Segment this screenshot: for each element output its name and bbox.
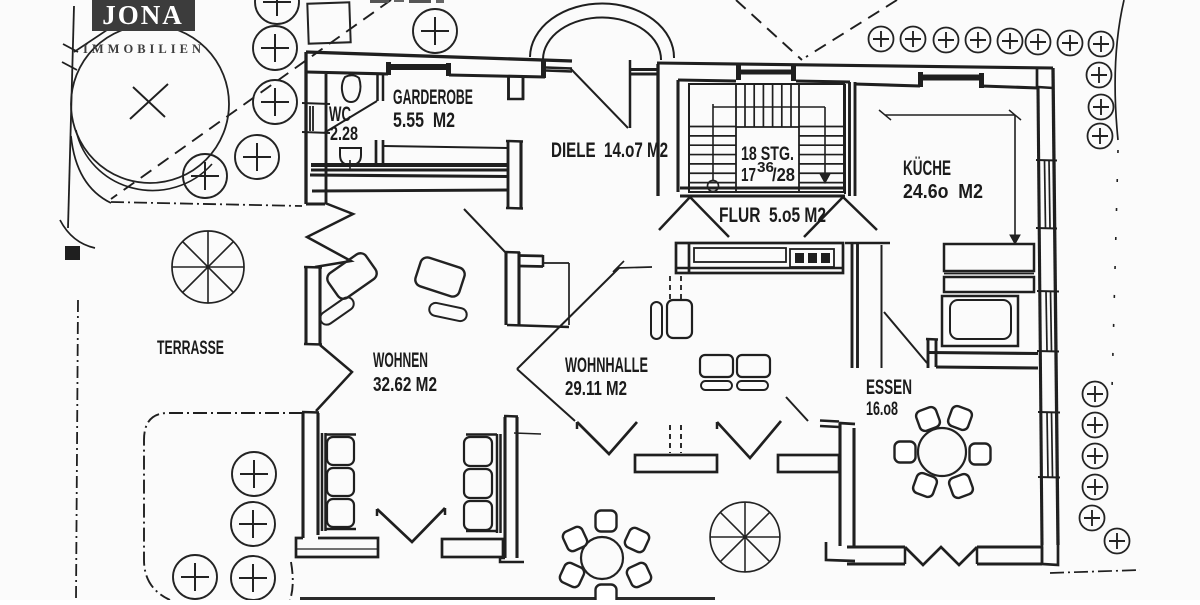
svg-text:DIELE 14.o7 M2: DIELE 14.o7 M2 xyxy=(551,139,668,162)
svg-text:29.11 M2: 29.11 M2 xyxy=(565,378,627,400)
svg-text:TERRASSE: TERRASSE xyxy=(157,338,224,359)
svg-text:17: 17 xyxy=(741,165,756,185)
svg-text:WC: WC xyxy=(329,103,351,126)
svg-text:ESSEN: ESSEN xyxy=(866,376,912,399)
svg-text:/28: /28 xyxy=(772,165,795,185)
svg-text:24.6o M2: 24.6o M2 xyxy=(903,181,983,203)
svg-text:16.o8: 16.o8 xyxy=(866,399,898,420)
svg-text:FLUR 5.o5 M2: FLUR 5.o5 M2 xyxy=(719,204,826,227)
svg-text:32.62 M2: 32.62 M2 xyxy=(373,374,437,396)
svg-text:JONA: JONA xyxy=(102,0,184,30)
svg-text:GARDEROBE: GARDEROBE xyxy=(393,86,473,109)
svg-text:IMMOBILIEN: IMMOBILIEN xyxy=(83,42,205,56)
svg-text:KÜCHE: KÜCHE xyxy=(903,157,951,180)
svg-text:5.55 M2: 5.55 M2 xyxy=(393,109,455,132)
svg-text:2.28: 2.28 xyxy=(330,124,358,145)
svg-text:WOHNHALLE: WOHNHALLE xyxy=(565,354,648,377)
svg-text:WOHNEN: WOHNEN xyxy=(373,349,428,372)
